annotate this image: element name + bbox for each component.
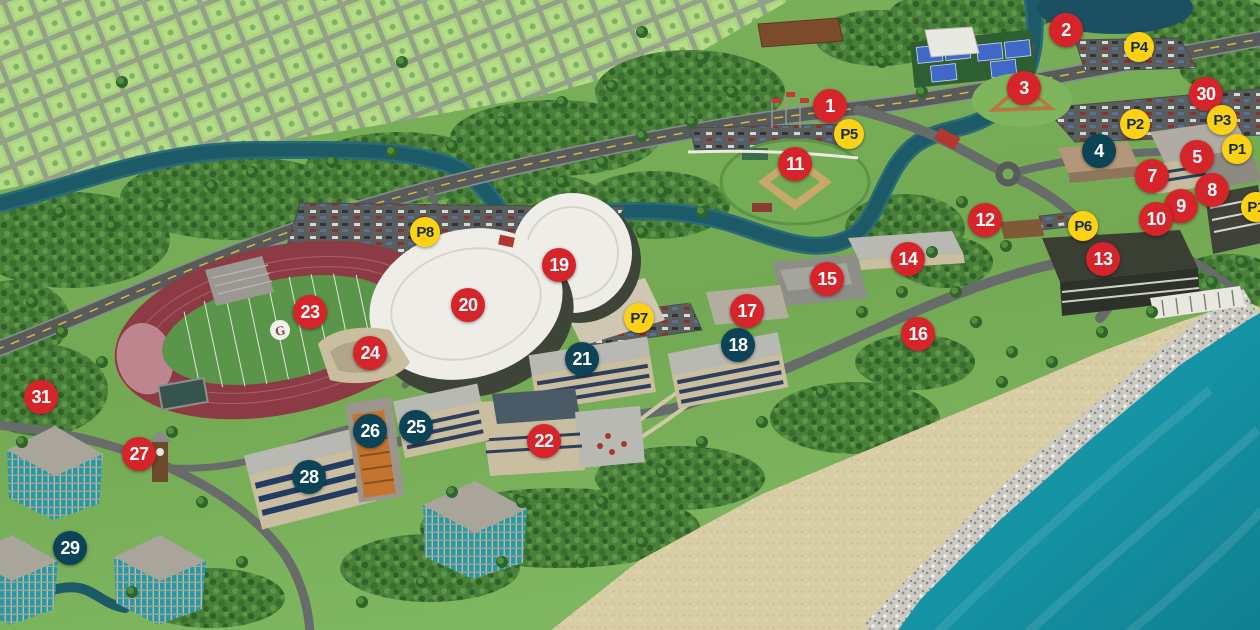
marker-P7[interactable]: P7 [624,303,654,333]
marker-16[interactable]: 16 [901,317,935,351]
marker-21[interactable]: 21 [565,342,599,376]
marker-22[interactable]: 22 [527,424,561,458]
marker-15[interactable]: 15 [810,262,844,296]
marker-17[interactable]: 17 [730,294,764,328]
marker-2[interactable]: 2 [1049,13,1083,47]
marker-1[interactable]: 1 [813,89,847,123]
marker-12[interactable]: 12 [968,203,1002,237]
marker-10[interactable]: 10 [1139,202,1173,236]
marker-26[interactable]: 26 [353,414,387,448]
marker-P2[interactable]: P2 [1120,109,1150,139]
marker-7[interactable]: 7 [1135,159,1169,193]
marker-28[interactable]: 28 [292,460,326,494]
marker-23[interactable]: 23 [293,295,327,329]
marker-P6[interactable]: P6 [1068,211,1098,241]
marker-5[interactable]: 5 [1180,140,1214,174]
marker-P1b[interactable]: P1 [1241,192,1260,222]
marker-11[interactable]: 11 [778,147,812,181]
campus-map: G [0,0,1260,630]
marker-18[interactable]: 18 [721,328,755,362]
marker-P5[interactable]: P5 [834,119,864,149]
marker-20[interactable]: 20 [451,288,485,322]
marker-29[interactable]: 29 [53,531,87,565]
marker-13[interactable]: 13 [1086,242,1120,276]
marker-P8[interactable]: P8 [410,217,440,247]
marker-25[interactable]: 25 [399,410,433,444]
marker-8[interactable]: 8 [1195,173,1229,207]
markers-layer: 1234578910111213141516171819202122232425… [0,0,1260,630]
marker-3[interactable]: 3 [1007,71,1041,105]
marker-27[interactable]: 27 [122,437,156,471]
marker-P3[interactable]: P3 [1207,105,1237,135]
marker-P4[interactable]: P4 [1124,32,1154,62]
marker-24[interactable]: 24 [353,336,387,370]
marker-19[interactable]: 19 [542,248,576,282]
marker-4[interactable]: 4 [1082,134,1116,168]
marker-31[interactable]: 31 [24,380,58,414]
marker-14[interactable]: 14 [891,242,925,276]
marker-P1[interactable]: P1 [1222,134,1252,164]
